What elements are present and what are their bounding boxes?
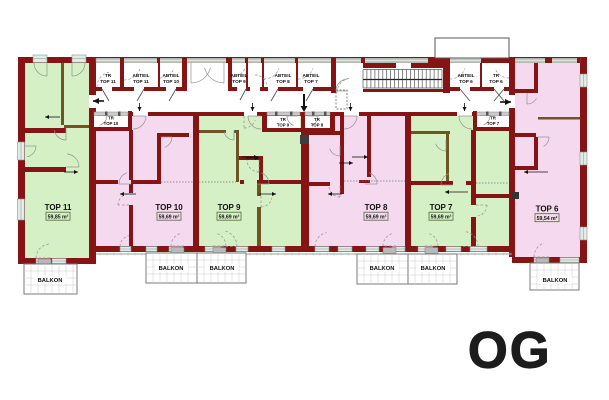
- svg-text:TOP 10: TOP 10: [155, 203, 183, 212]
- svg-text:ABTEIL: ABTEIL: [231, 73, 248, 78]
- svg-text:TOP 9: TOP 9: [232, 79, 246, 84]
- svg-text:TOP 7: TOP 7: [430, 203, 453, 212]
- svg-text:59,69 m²: 59,69 m²: [366, 215, 387, 221]
- svg-text:TOP 7: TOP 7: [487, 121, 500, 126]
- svg-text:BALKON: BALKON: [159, 266, 184, 272]
- svg-text:TR: TR: [490, 116, 497, 121]
- svg-text:TOP 8: TOP 8: [276, 79, 290, 84]
- svg-text:TOP 10: TOP 10: [104, 121, 119, 126]
- svg-text:59,54 m²: 59,54 m²: [537, 216, 558, 222]
- svg-text:BALKON: BALKON: [370, 266, 395, 272]
- svg-text:ABTEIL: ABTEIL: [275, 73, 292, 78]
- svg-text:59,69 m²: 59,69 m²: [159, 215, 180, 221]
- svg-text:TR: TR: [314, 117, 321, 122]
- svg-text:TOP 11: TOP 11: [100, 79, 116, 84]
- svg-text:ABTEIL: ABTEIL: [163, 73, 180, 78]
- svg-text:TR: TR: [105, 73, 112, 78]
- svg-text:ABTEIL: ABTEIL: [133, 73, 150, 78]
- svg-text:59,69 m²: 59,69 m²: [431, 215, 452, 221]
- svg-text:TR: TR: [493, 73, 500, 78]
- svg-text:BALKON: BALKON: [421, 266, 446, 272]
- svg-text:TOP 11: TOP 11: [45, 203, 72, 212]
- svg-text:TOP 8: TOP 8: [365, 203, 388, 212]
- svg-text:TR: TR: [280, 117, 287, 122]
- svg-text:ABTEIL: ABTEIL: [458, 73, 475, 78]
- svg-text:TOP 8: TOP 8: [311, 123, 324, 128]
- svg-text:TOP 6: TOP 6: [536, 205, 559, 214]
- svg-text:TOP 7: TOP 7: [304, 79, 318, 84]
- svg-text:59,85 m²: 59,85 m²: [48, 215, 69, 221]
- svg-text:TOP 10: TOP 10: [163, 79, 179, 84]
- svg-text:TOP 9: TOP 9: [218, 203, 241, 212]
- svg-text:TOP 9: TOP 9: [277, 123, 290, 128]
- svg-text:TOP 6: TOP 6: [489, 79, 503, 84]
- svg-text:OG: OG: [468, 322, 552, 379]
- svg-text:BALKON: BALKON: [543, 278, 568, 284]
- svg-text:59,69 m²: 59,69 m²: [219, 215, 240, 221]
- svg-text:TOP 6: TOP 6: [459, 79, 473, 84]
- svg-text:BALKON: BALKON: [38, 278, 63, 284]
- svg-text:BALKON: BALKON: [210, 266, 235, 272]
- svg-text:TOP 11: TOP 11: [133, 79, 149, 84]
- svg-text:TR: TR: [108, 116, 115, 121]
- svg-text:ABTEIL: ABTEIL: [303, 73, 320, 78]
